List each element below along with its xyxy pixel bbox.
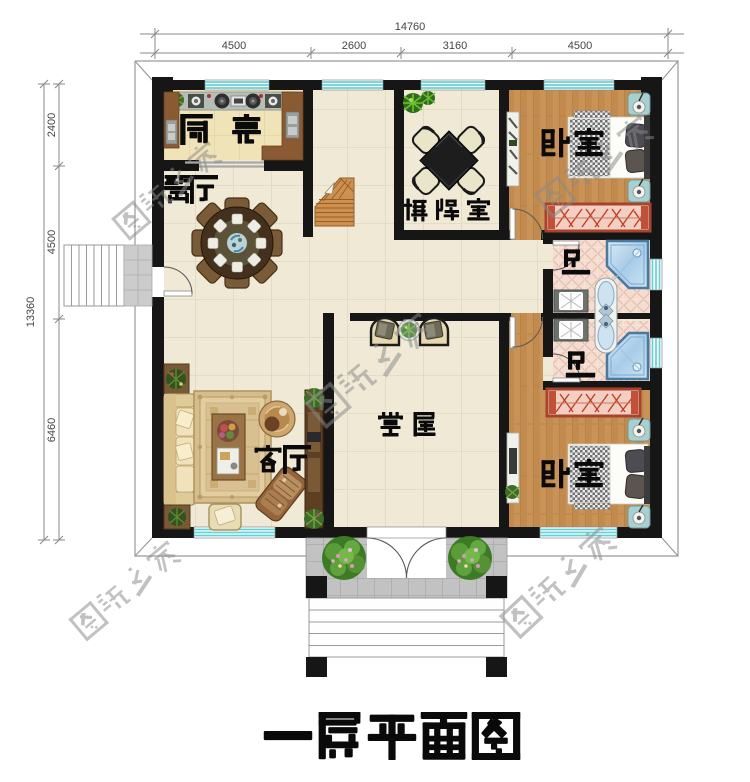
svg-text:4500: 4500 xyxy=(568,40,592,52)
svg-text:6460: 6460 xyxy=(46,418,58,442)
svg-text:2400: 2400 xyxy=(46,113,58,137)
svg-text:3160: 3160 xyxy=(443,40,467,52)
svg-text:2600: 2600 xyxy=(342,40,366,52)
svg-text:13360: 13360 xyxy=(25,297,37,328)
svg-text:4500: 4500 xyxy=(46,230,58,254)
svg-text:14760: 14760 xyxy=(395,21,426,33)
svg-text:4500: 4500 xyxy=(222,40,246,52)
